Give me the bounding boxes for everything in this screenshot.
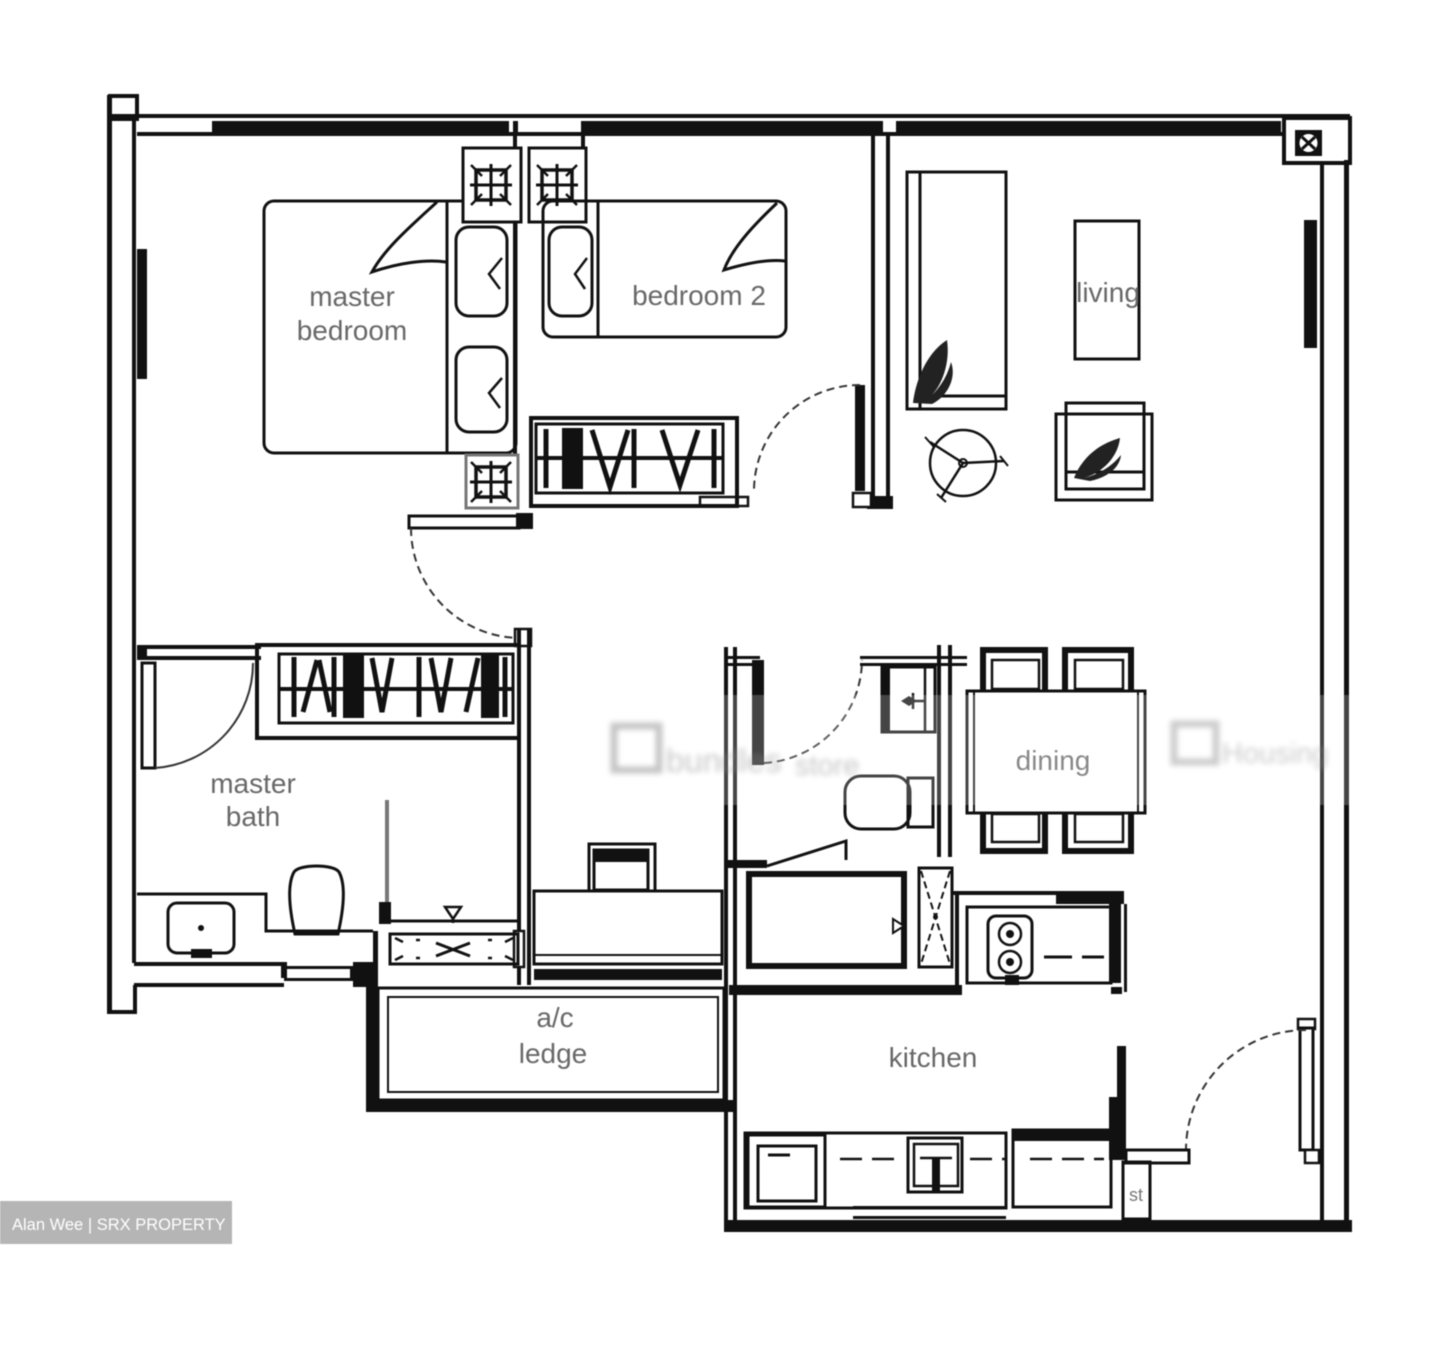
svg-text:bundles: bundles <box>666 742 782 779</box>
svg-text:master: master <box>309 281 395 312</box>
svg-text:Housing: Housing <box>1222 738 1328 770</box>
svg-text:ledge: ledge <box>519 1038 588 1069</box>
svg-text:bedroom: bedroom <box>297 315 408 346</box>
svg-text:Alan Wee | SRX PROPERTY: Alan Wee | SRX PROPERTY <box>12 1216 226 1234</box>
svg-text:store: store <box>795 750 859 782</box>
svg-text:kitchen: kitchen <box>889 1042 978 1073</box>
svg-text:bedroom 2: bedroom 2 <box>632 280 766 311</box>
svg-text:master: master <box>210 768 296 799</box>
svg-text:living: living <box>1076 277 1140 308</box>
svg-text:bath: bath <box>226 801 281 832</box>
svg-text:a/c: a/c <box>536 1002 573 1033</box>
svg-text:st: st <box>1129 1185 1143 1205</box>
